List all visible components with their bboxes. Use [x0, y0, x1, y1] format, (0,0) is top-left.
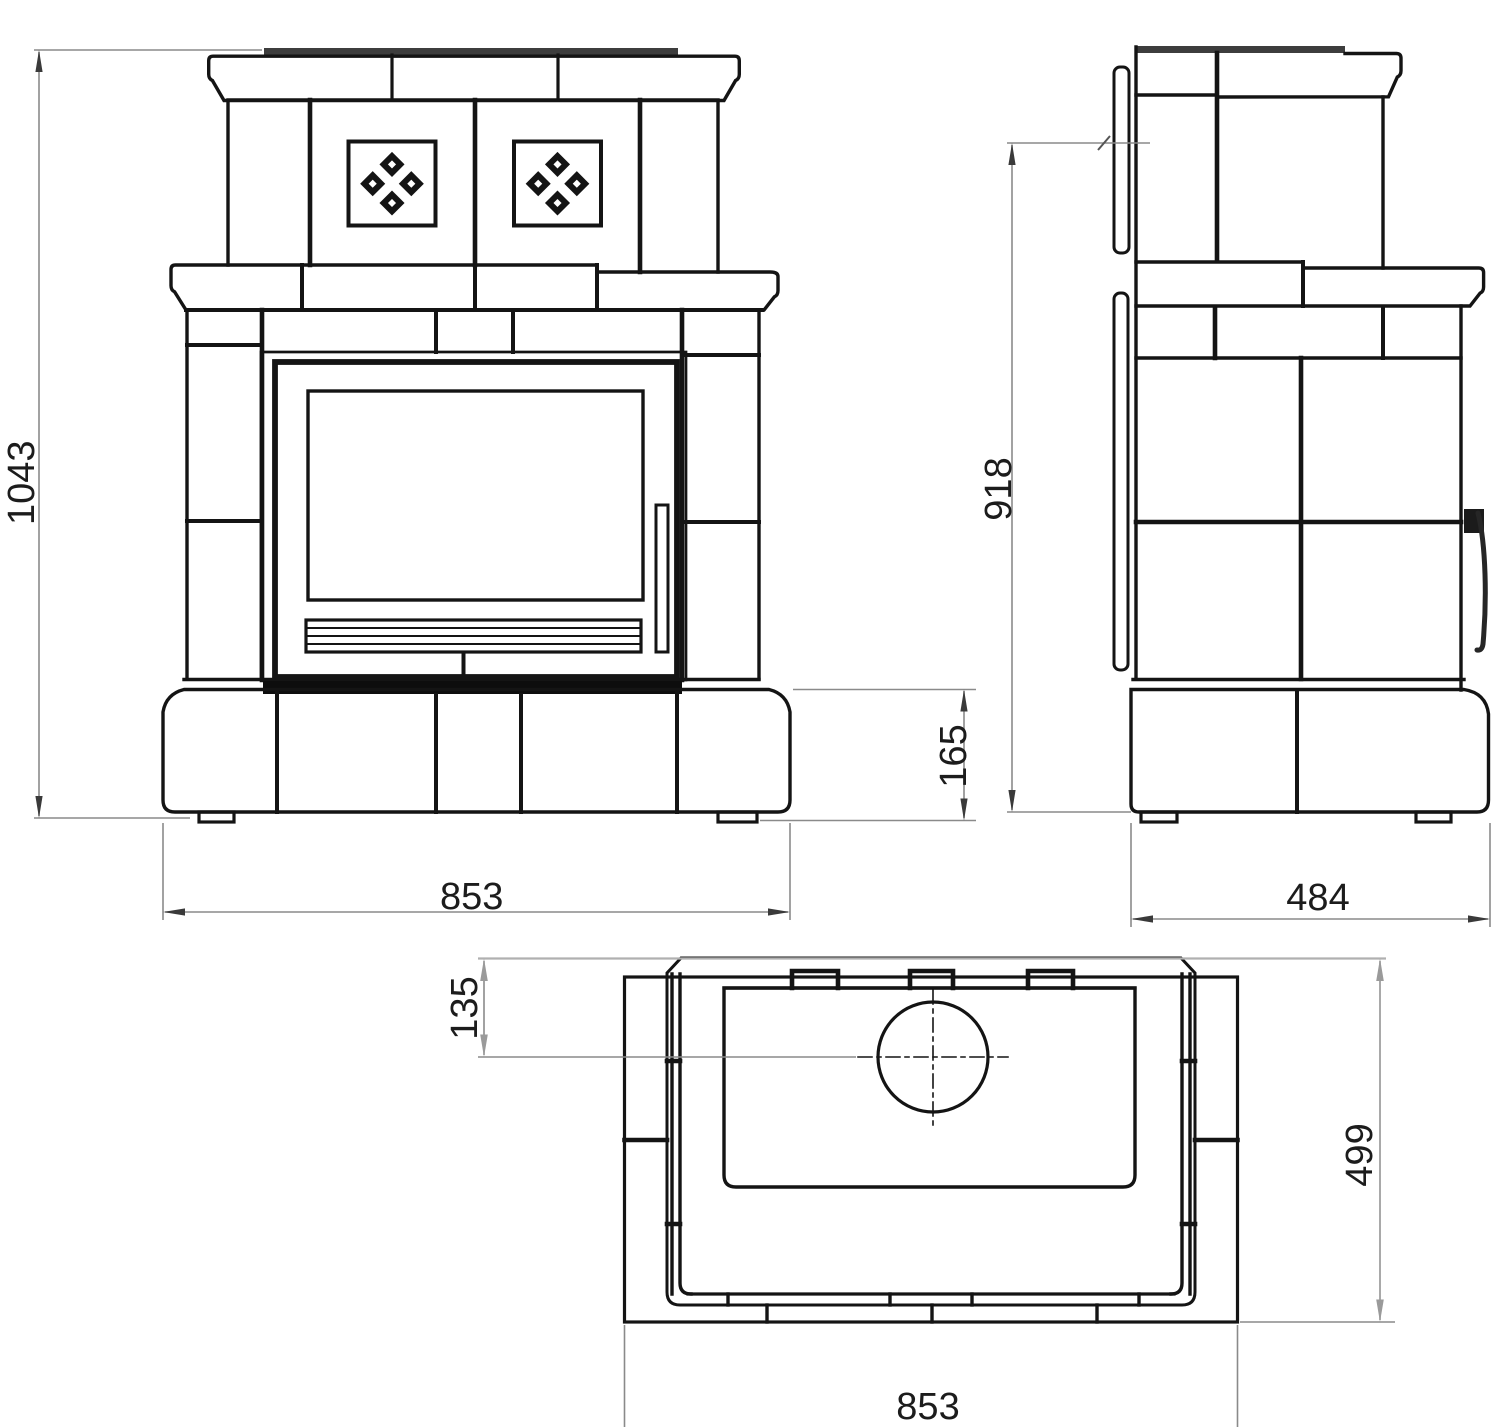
svg-text:499: 499 [1339, 1123, 1381, 1186]
svg-text:853: 853 [440, 876, 503, 918]
svg-text:853: 853 [896, 1386, 959, 1427]
svg-text:918: 918 [978, 457, 1020, 520]
svg-text:484: 484 [1286, 877, 1349, 919]
svg-text:165: 165 [933, 724, 975, 787]
svg-text:1043: 1043 [1, 440, 43, 525]
svg-text:135: 135 [444, 976, 486, 1039]
